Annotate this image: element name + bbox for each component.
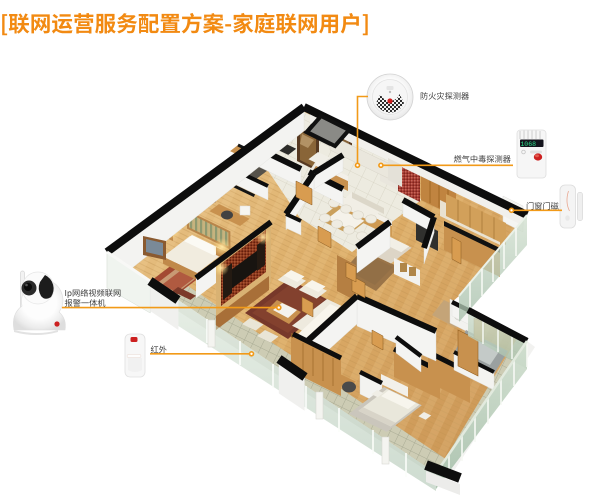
svg-text:1068: 1068 xyxy=(520,141,536,148)
